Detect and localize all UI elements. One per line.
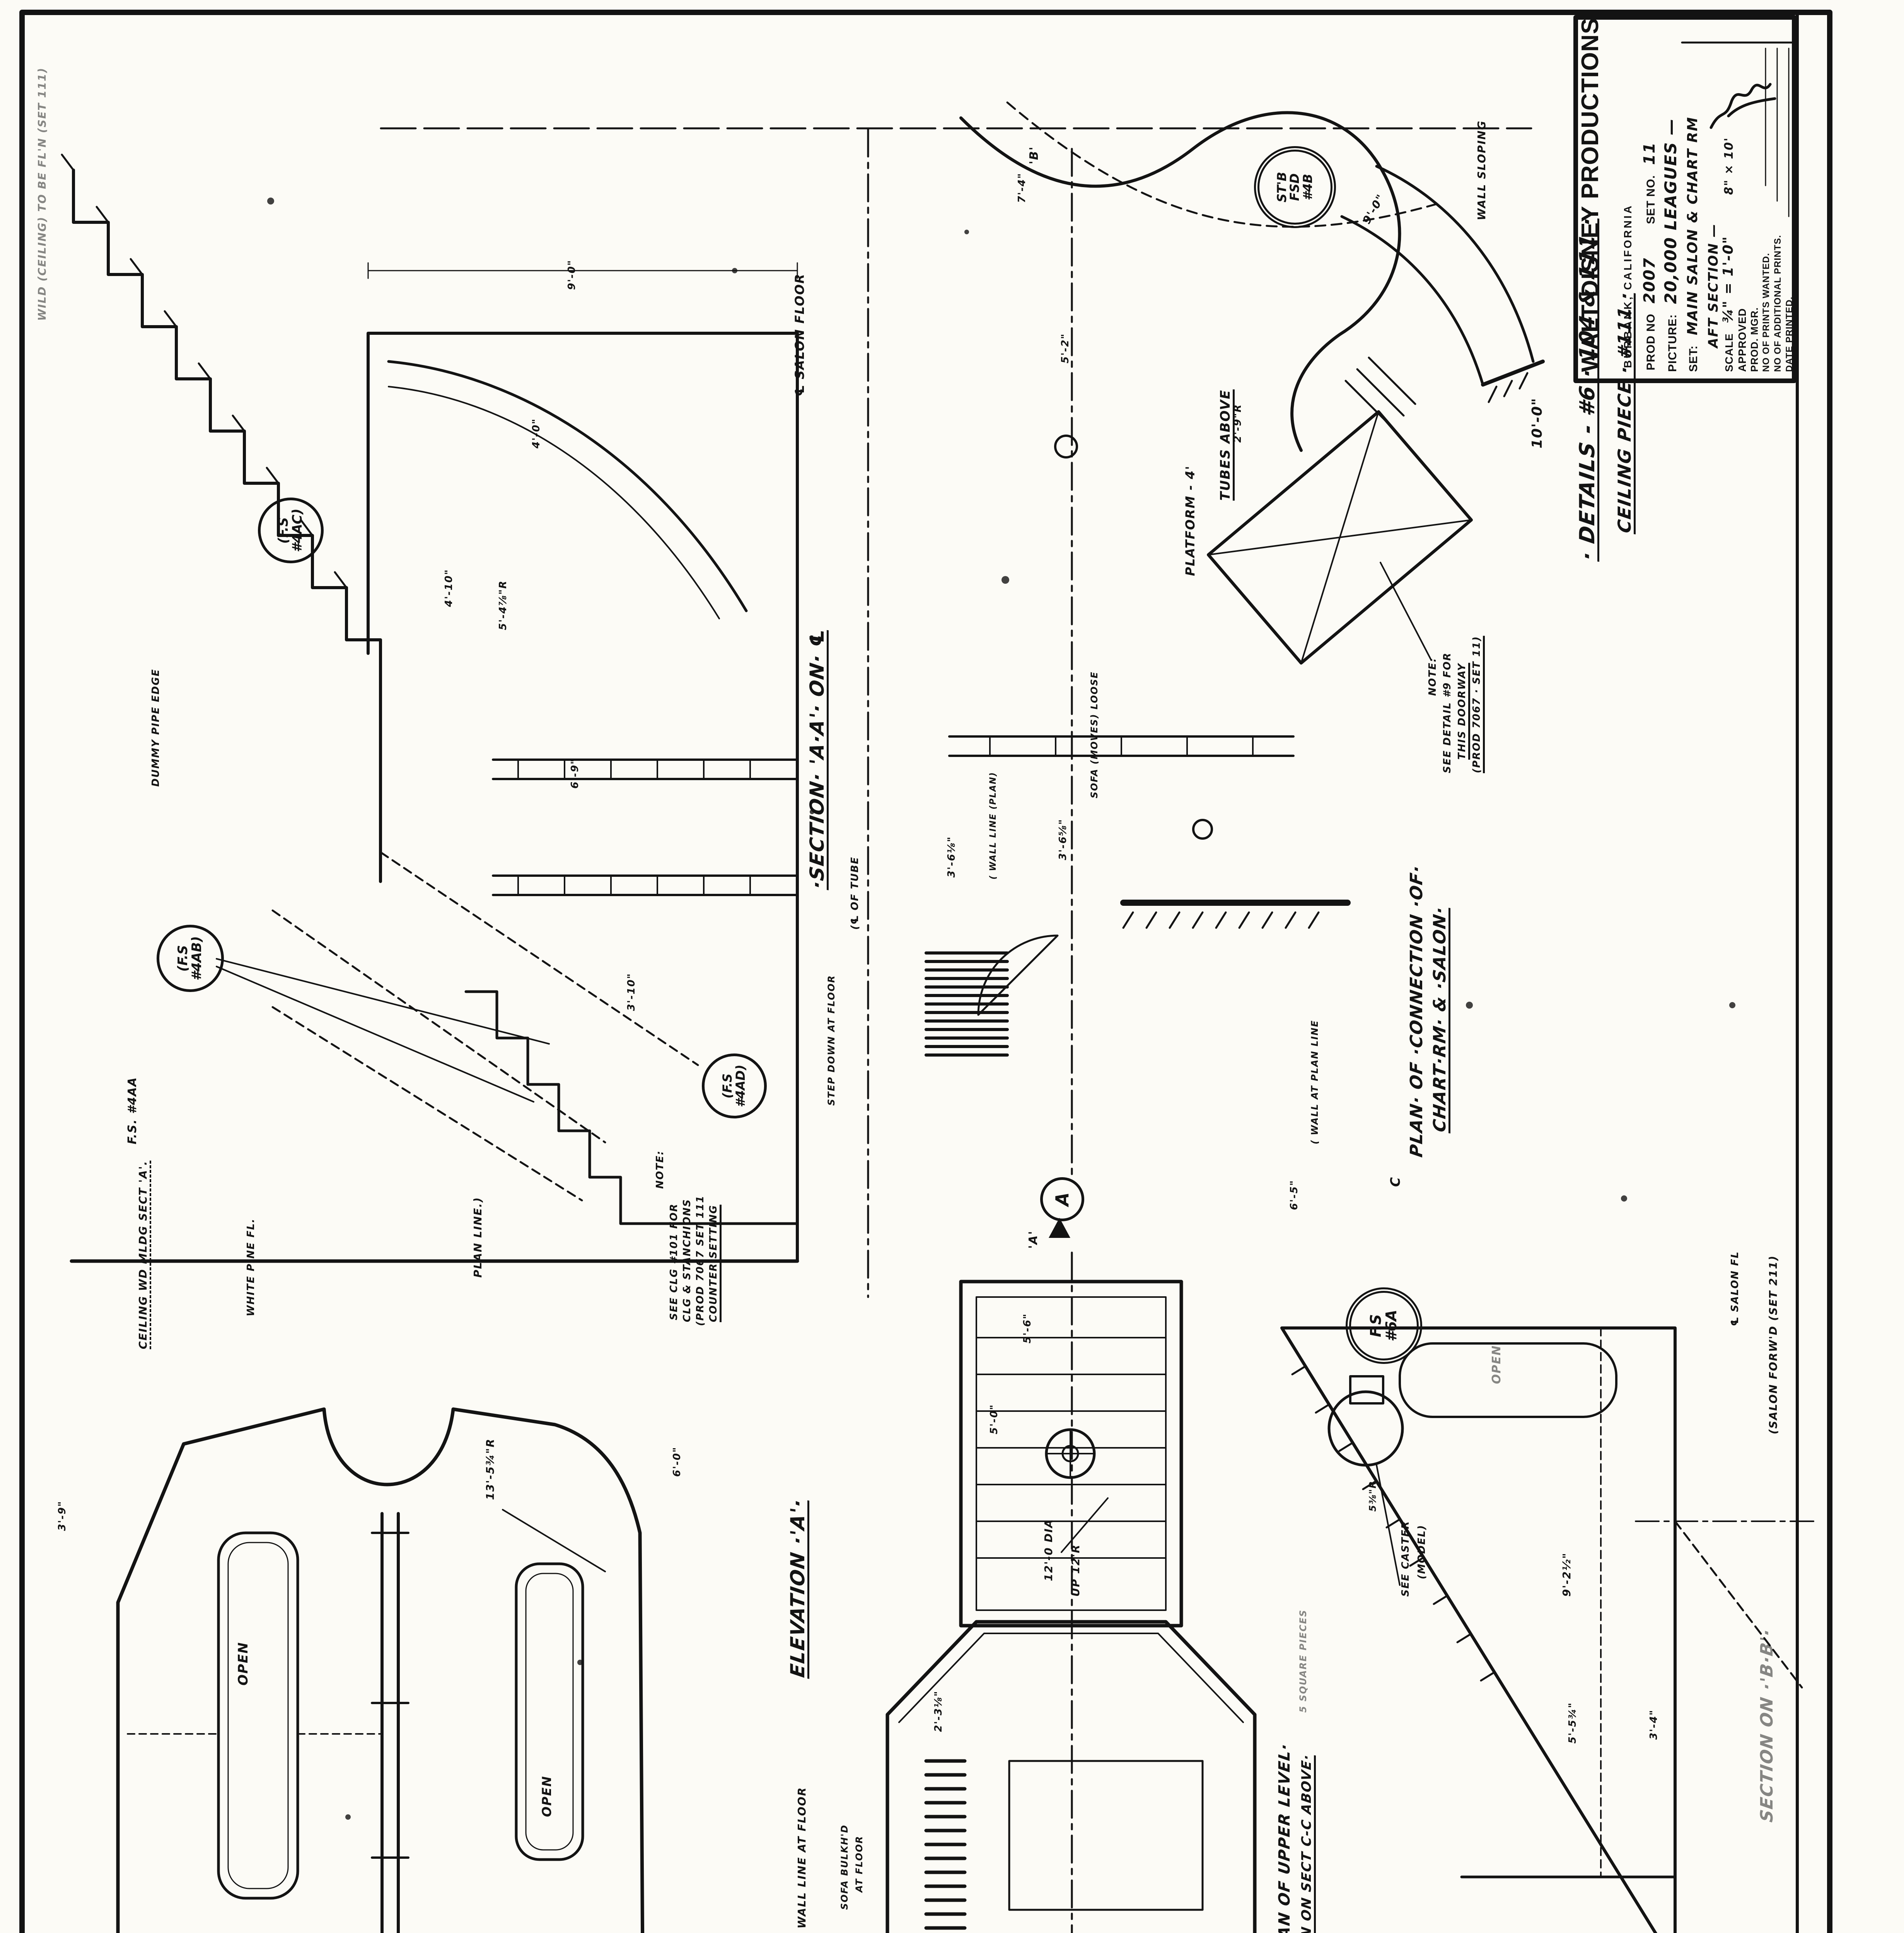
dim-13-5r: 13'-5¾"R bbox=[485, 1438, 496, 1500]
sofa-moves-label: SOFA (MOVES) LOOSE bbox=[1090, 671, 1099, 798]
stanchion-note-line3: CLG & STANCHIONS bbox=[682, 1199, 692, 1322]
plan-line-label: PLAN LINE.) bbox=[473, 1197, 483, 1278]
dim-up-12r: UP 12'R bbox=[1070, 1544, 1081, 1597]
dim-5-5: 5'-5¾" bbox=[1568, 1702, 1578, 1744]
set-no-label: SET NO. bbox=[1645, 175, 1657, 224]
stamp-fs-4ab-line1: (F.S bbox=[176, 945, 190, 972]
salon-floor-label: ℄ SALON FLOOR bbox=[793, 273, 806, 396]
plan-connection-title-line2: CHART·RM· & ·SALON· bbox=[1431, 905, 1448, 1133]
dim-10-0: 10'-0" bbox=[1530, 397, 1544, 448]
stamp-fs-6a: F.S #6A bbox=[1346, 1287, 1422, 1364]
dim-2-9r: 2'-9"R bbox=[1233, 404, 1243, 443]
stamp-fs-4ad: (F.S #4AD) bbox=[702, 1053, 767, 1118]
cl-of-tube-label: (℄ OF TUBE bbox=[850, 856, 860, 930]
doorway-note-line1: NOTE: bbox=[1428, 657, 1438, 696]
stamp-stb-line3: #4B bbox=[1302, 174, 1315, 201]
dim-9-2: 9'-2½" bbox=[1561, 1552, 1572, 1597]
moulding-title: CEILING WD MLDG SECT 'A'. bbox=[138, 1161, 148, 1349]
platform-label: PLATFORM - 4' bbox=[1184, 465, 1196, 576]
section-aa-title: ·SECTION· 'A·A'· ON· ℄ bbox=[807, 627, 827, 890]
prod-no-label: PROD NO bbox=[1645, 314, 1657, 370]
doorway-note-line3: THIS DOORWAY bbox=[1457, 663, 1467, 760]
stamp-stb-line2: FSD bbox=[1288, 173, 1302, 201]
wall-sloping-label: WALL SLOPING bbox=[1476, 120, 1487, 220]
dim-7-4: 7'-4" bbox=[1017, 173, 1027, 203]
set-no-value: 11 bbox=[1642, 142, 1657, 165]
stanchion-note-line1: NOTE: bbox=[655, 1150, 665, 1189]
stamp-fs-4ad-line2: #4AD) bbox=[734, 1065, 747, 1107]
dim-6-0: 6'-0" bbox=[672, 1447, 682, 1477]
marker-a-letter: A bbox=[1053, 1192, 1071, 1206]
stanchion-note-line5: COUNTER SETTING bbox=[708, 1205, 718, 1322]
stanchion-note-line4: (PROD 7067 SET 111 bbox=[695, 1195, 705, 1326]
step-down-label: STEP DOWN AT FLOOR bbox=[827, 975, 836, 1106]
wall-line-floor-label: ( WALL LINE AT FLOOR bbox=[797, 1787, 807, 1933]
stamp-stb-fsd-4b: ST'B FSD #4B bbox=[1254, 146, 1336, 228]
dim-6-5: 6'-5" bbox=[1289, 1180, 1299, 1210]
view-plan-connection bbox=[381, 102, 1543, 1238]
corner-handwritten-note: WILD (CEILING) TO BE FL'N (SET 111) bbox=[37, 67, 48, 321]
doorway-note-line2: SEE DETAIL #9 FOR bbox=[1442, 652, 1452, 773]
drawing-linework bbox=[0, 0, 1904, 1933]
titleblock-prod-mgr: PROD. MGR. bbox=[1749, 307, 1759, 372]
stanchion-note-line2: SEE CLG #101 FOR bbox=[669, 1203, 679, 1320]
stamp-fs-4ab: (F.S #4AB) bbox=[157, 925, 224, 992]
dummy-pipe-label: DUMMY PIPE EDGE bbox=[151, 669, 161, 787]
dim-5-0: 5'-0" bbox=[989, 1404, 999, 1434]
titleblock-set-row: SET: MAIN SALON & CHART RM bbox=[1686, 116, 1700, 372]
dim-2-3: 2'-3⅛" bbox=[933, 1691, 943, 1732]
stamp-fs-4ac-line2: #4AC) bbox=[291, 508, 305, 552]
upper-plan-title-line2: TAKEN ON SECT C-C ABOVE· bbox=[1300, 1753, 1313, 1933]
set-label: SET: bbox=[1688, 345, 1699, 372]
open-label-3: OPEN bbox=[1491, 1345, 1503, 1384]
dim-12-dia: 12'-0 DIA bbox=[1043, 1519, 1054, 1581]
sofa-bulkhead-line1: SOFA BULKH'D bbox=[840, 1824, 849, 1910]
salon-forward-label: (SALON FORW'D (SET 211) bbox=[1768, 1255, 1779, 1434]
scale-label: SCALE bbox=[1724, 333, 1735, 372]
stamp-fs-6a-line2: #6A bbox=[1384, 1310, 1399, 1342]
wall-at-plan-label: ( WALL AT PLAN LINE bbox=[1310, 1020, 1319, 1144]
titleblock-date-printed: DATE PRINTED. bbox=[1785, 297, 1794, 372]
dim-5-6: 5'-6" bbox=[1022, 1313, 1032, 1343]
scan-noise bbox=[267, 198, 1735, 1820]
dim-5-2: 5'-2" bbox=[1060, 333, 1070, 363]
dim-3-10: 3'-10" bbox=[626, 973, 636, 1011]
marker-a-quote-label: 'A' bbox=[1028, 1230, 1039, 1249]
salon-fl-label: ℄ SALON FL bbox=[1730, 1251, 1740, 1326]
view-section-bb bbox=[1282, 1328, 1817, 1933]
sofa-bulkhead-line2: AT FLOOR bbox=[855, 1836, 864, 1892]
plan-connection-title-line1: PLAN· OF ·CONNECTION ·OF· bbox=[1408, 864, 1425, 1158]
dim-5-4r: 5'-4⅞"R bbox=[498, 580, 508, 630]
stamp-fs-4ad-line1: (F.S bbox=[721, 1074, 734, 1099]
caster-note-line1: SEE CASTER bbox=[1401, 1520, 1411, 1597]
dim-3-4: 3'-4" bbox=[1649, 1710, 1659, 1740]
picture-value: 20,000 LEAGUES — bbox=[1663, 118, 1679, 304]
section-bb-title: SECTION ON ·'B·B'· bbox=[1759, 1628, 1776, 1823]
size-note: 8" × 10' bbox=[1723, 137, 1735, 195]
border-frame bbox=[22, 12, 1830, 1933]
view-left-elevation bbox=[95, 1409, 659, 1933]
marker-a-circle: A bbox=[1040, 1177, 1084, 1221]
titleblock-picture-row: PICTURE: 20,000 LEAGUES — bbox=[1663, 118, 1679, 372]
stamp-fs-4ac-line1: (F.S bbox=[277, 517, 291, 544]
stamp-fs-6a-line1: F.S bbox=[1368, 1314, 1384, 1337]
tubes-above-label: TUBES ABOVE bbox=[1219, 389, 1232, 501]
white-pine-label: WHITE PINE FL. bbox=[246, 1218, 256, 1316]
prod-no-value: 2007 bbox=[1642, 257, 1657, 303]
blueprint-sheet: { "sheet": { "description": "Scanned Wal… bbox=[0, 0, 1904, 1933]
dim-4-0: 4'-0" bbox=[531, 418, 541, 448]
picture-label: PICTURE: bbox=[1667, 314, 1679, 372]
dim-4-10: 4'-10" bbox=[444, 569, 454, 607]
drawing-title-line2: CEILING PIECE · #111 · bbox=[1616, 291, 1633, 534]
elevation-a-title: ELEVATION ·'A'· bbox=[788, 1498, 807, 1679]
dim-3-6-1: 3'-6⅛" bbox=[947, 836, 957, 878]
titleblock-prints-wanted: NO OF PRINTS WANTED. bbox=[1762, 253, 1771, 372]
scale-value: ¾" = 1'-0" bbox=[1721, 236, 1735, 323]
view-section-aa bbox=[62, 130, 868, 1297]
dim-3-9: 3'-9" bbox=[57, 1501, 67, 1531]
dim-9-0: 9'-0" bbox=[567, 260, 577, 290]
fs-4aa-label: F.S. #4AA bbox=[127, 1077, 138, 1144]
titleblock-additional-prints: NO OF ADDITIONAL PRINTS. bbox=[1773, 235, 1783, 372]
five-square-label: 5 SQUARE PIECES bbox=[1298, 1609, 1308, 1713]
marker-b-label: 'B' bbox=[1029, 146, 1040, 164]
open-label-2: OPEN bbox=[541, 1776, 553, 1817]
doorway-note-line4: (PROD 7067 · SET 11) bbox=[1472, 636, 1482, 773]
stamp-fs-4ab-line2: #4AB) bbox=[190, 936, 204, 980]
stamp-fs-4ac: (F.S #4AC) bbox=[258, 498, 324, 563]
titleblock-scale-row: SCALE ¾" = 1'-0" 8" × 10' bbox=[1721, 137, 1735, 372]
dim-6-9: 6'-9" bbox=[570, 759, 580, 789]
stamp-stb-line1: ST'B bbox=[1276, 172, 1289, 202]
titleblock-approved: APPROVED bbox=[1737, 308, 1748, 372]
dim-3-6-5: 3'-6⅝" bbox=[1058, 819, 1068, 860]
set-name-value: MAIN SALON & CHART RM bbox=[1686, 116, 1700, 335]
dim-0-5r: 5⅜"R bbox=[1368, 1480, 1377, 1512]
titleblock-set-name2: AFT SECTION — bbox=[1707, 223, 1720, 348]
titleblock-prod-row: PROD NO 2007 SET NO. 11 bbox=[1642, 142, 1657, 370]
drawing-title-line1: · DETAILS - #6 · 104 & 111 · bbox=[1577, 215, 1598, 561]
open-label-1: OPEN bbox=[237, 1642, 250, 1686]
upper-plan-title-line1: PLAN OF UPPER LEVEL· bbox=[1277, 1742, 1292, 1933]
caster-note-line2: (MODEL) bbox=[1417, 1524, 1427, 1579]
wall-line-plan-label: ( WALL LINE (PLAN) bbox=[989, 772, 998, 880]
marker-c-label: C bbox=[1389, 1176, 1402, 1187]
